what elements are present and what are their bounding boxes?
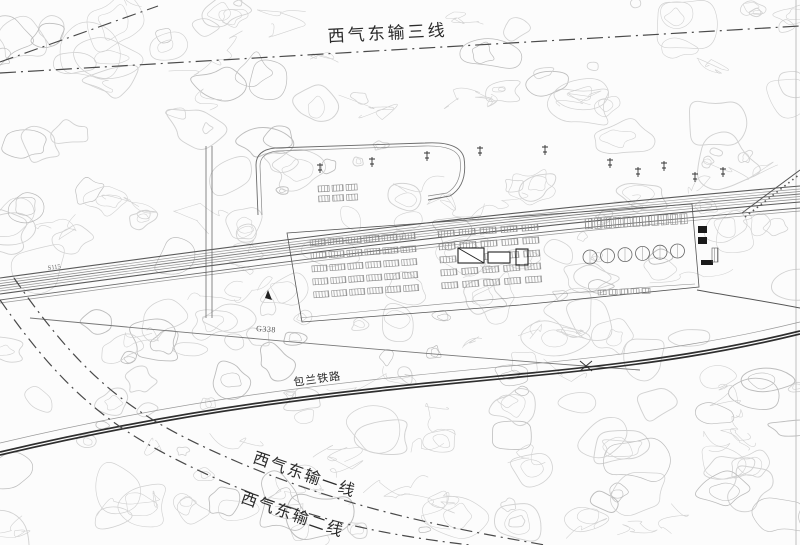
equipment-grid [585,214,687,229]
contour-line [498,395,518,408]
contour-line [118,484,166,527]
contour-line [380,349,394,365]
contour-line [0,345,14,356]
equipment-rect [383,247,398,254]
contour-line [544,239,573,264]
contour-line [352,318,369,331]
contour-line [509,516,525,527]
contour-line [595,119,655,154]
contour-line [203,304,257,332]
contour-line [308,96,324,118]
contour-line [587,62,598,70]
contour-line [574,265,619,289]
contour-line [444,88,496,109]
contour-line [286,392,293,395]
contour-line [501,395,525,418]
contour-line [356,159,361,164]
site-plan-drawing: 西气东输三线 [0,0,800,545]
contour-line [786,9,800,20]
contour-line [96,421,110,429]
equipment-rect [460,241,476,248]
equipment-rect [403,272,418,279]
contour-line [192,310,237,340]
contour-line [446,12,484,24]
contour-line [271,282,297,303]
contour-line [205,400,212,408]
equipment-rect [329,251,344,258]
equipment-rect [642,288,650,293]
contour-line [591,319,633,354]
contour-line [341,206,361,231]
equipment-rect [365,248,380,255]
contour-line [105,395,123,410]
contour-line [150,32,188,60]
contour-line [518,320,541,339]
contour-line [444,503,472,529]
contour-line [31,23,64,47]
equipment-rect [364,235,379,242]
contour-line [504,18,531,41]
contour-line [339,95,398,120]
contour-line [51,120,88,144]
equipment-rect [385,286,400,293]
pylon-icon [661,161,667,171]
equipment-rect [367,274,382,281]
loop-road [256,143,465,215]
contour-line [697,58,729,74]
equipment-rect [384,260,399,267]
contour-line [542,330,568,347]
contour-line [166,109,227,149]
contour-line [76,177,104,204]
contour-line [564,507,608,531]
contour-line [566,518,607,538]
contour-line [700,366,737,389]
contour-line [321,159,336,174]
contour-line [0,209,27,254]
contour-line [94,51,129,64]
pylon-layer [317,145,726,182]
equipment-rect [402,259,417,266]
equipment-rect [631,289,639,294]
contour-line [272,149,325,191]
contour-line [25,387,52,413]
pylon-icon [477,146,483,156]
contour-line [779,71,800,97]
equipment-rect [680,214,688,224]
contour-line [419,527,431,533]
contour-line [510,454,552,488]
contour-line [489,389,535,426]
equipment-rect [441,269,457,276]
contour-line [509,170,556,205]
equipment-rect [525,263,541,270]
equipment-rect [439,243,455,250]
contour-line [310,52,338,62]
contour-line [200,398,215,410]
contour-line [427,194,480,217]
equipment-rect [348,262,363,269]
contour-line [703,431,730,452]
contour-line [558,392,596,412]
contour-line [463,337,482,348]
equipment-rect [623,217,631,227]
equipment-rect [346,184,357,191]
contour-line [16,197,35,215]
facility-black-units [698,226,718,265]
contour-line [192,19,219,37]
equipment-grid [318,184,358,202]
contour-line [207,2,230,20]
contour-line [437,314,447,320]
contour-line [261,273,309,305]
contour-line [144,438,161,455]
contour-line [202,0,251,27]
contour-line [313,445,362,461]
contour-line [304,535,329,545]
contour-line [384,310,410,328]
contour-line [0,510,29,545]
contour-line [738,150,753,162]
equipment-rect [502,238,518,245]
contour-line [617,521,657,535]
equipment-rect [523,237,539,244]
pylon-icon [424,151,430,161]
contour-line [137,214,149,222]
contour-line [611,472,665,515]
contour-line [177,498,209,525]
contour-line [39,16,64,47]
equipment-rect [598,290,606,295]
pylon-icon [542,145,548,155]
contour-line [83,438,92,446]
contour-line [578,417,627,457]
equipment-rect [313,278,328,285]
equipment-rect [318,185,329,192]
contour-line [650,269,733,283]
equipment-rect [609,289,617,294]
contour-line [124,328,159,347]
contour-line [249,60,287,100]
contour-line [556,91,601,106]
contour-line [328,447,363,477]
contour-line [704,161,778,179]
equipment-rect [670,214,678,224]
contour-line [257,10,306,37]
contour-line [411,438,444,452]
contour-line [388,183,421,210]
equipment-rect [333,195,344,202]
contour-line [384,476,428,498]
contour-line [263,126,292,148]
contour-line [748,373,775,389]
equipment-rect [382,234,397,241]
pipeline-line1-label: 西气东输一线 [251,449,359,501]
equipment-rect [642,216,650,226]
equipment-rect [459,228,475,235]
equipment-rect [501,225,517,232]
contour-line [709,483,739,501]
contour-line [493,421,532,449]
contour-line [209,487,240,516]
pipeline-line3-label: 西气东输三线 [327,21,448,46]
contour-line [710,384,741,406]
contour-line [0,213,36,245]
contour-line [84,77,113,93]
equipment-rect [346,194,357,201]
contour-line [0,16,47,59]
contour-line [528,176,546,191]
contour-line [96,195,121,208]
contour-line [689,101,746,145]
equipment-rect [620,289,628,294]
contour-line [177,447,190,456]
equipment-rect [613,217,621,227]
contour-line [210,433,264,449]
equipment-grid [598,288,650,295]
contour-line [98,5,128,41]
contour-line [788,382,800,392]
equipment-rect [311,252,326,259]
equipment-rect [346,236,361,243]
contour-line [710,148,723,156]
equipment-rect [403,285,418,292]
contour-line [174,203,229,234]
contour-line [188,281,243,301]
equipment-rect [525,276,541,283]
equipment-rect [480,227,496,234]
equipment-rect [350,288,365,295]
equipment-rect [310,239,325,246]
contour-line [526,71,569,96]
contour-line [534,68,554,79]
contour-line [289,333,301,341]
equipment-rect [522,224,538,231]
contour-line [577,509,599,524]
contour-line [630,0,640,8]
contour-line [210,156,252,195]
equipment-rect [632,216,640,226]
contour-line [700,202,712,210]
contour-line [293,85,339,121]
equipment-rect [332,185,343,192]
contour-line [688,176,710,194]
contour-line [554,79,609,110]
pylon-icon [607,158,613,168]
equipment-rect [481,240,497,247]
contour-line [137,403,158,417]
contour-line [125,366,157,392]
contour-line [695,402,733,423]
contour-line [492,87,505,92]
contour-line [150,330,178,354]
equipment-rect [314,291,329,298]
contour-line [346,406,399,454]
equipment-rect [484,279,500,286]
equipment-rect [585,219,593,229]
contour-line [664,8,684,26]
contour-line [658,504,688,534]
contour-line [498,88,505,91]
equipment-rect [312,265,327,272]
contour-line [121,351,137,363]
contour-line [721,430,756,451]
contour-line [505,510,530,535]
equipment-rect [367,287,382,294]
equipment-rect [385,273,400,280]
contour-line [234,277,272,303]
equipment-rect [483,266,499,273]
equipment-rect [463,280,479,287]
contour-line [668,330,709,347]
contour-line [282,159,313,181]
equipment-rect [349,275,364,282]
contour-line [637,389,677,422]
contour-line [0,452,33,489]
equipment-rect [330,264,345,271]
equipment-rect [438,230,454,237]
road-left-label: S115 [47,263,61,272]
contour-line [260,342,295,381]
equipment-rect [651,215,659,225]
contour-line [577,232,587,242]
contour-line [363,480,455,513]
contour-line [603,438,670,481]
contour-line [567,299,612,341]
contour-line [557,327,585,338]
equipment-rect [604,218,612,228]
contour-line [354,321,365,328]
equipment-rect [401,246,416,253]
contour-line [156,29,172,43]
contour-line [763,218,788,235]
contour-line [221,373,241,387]
contour-line [433,434,450,447]
contour-line [702,446,746,479]
contour-line [423,429,455,452]
contour-line [260,297,275,316]
contour-line [494,504,541,542]
equipment-rect [524,250,540,257]
contour-line [732,450,770,478]
contour-line [704,210,747,242]
contour-line [195,89,222,110]
pylon-icon [635,167,641,177]
contour-line [172,343,207,356]
contour-line [767,79,800,118]
contour-line [768,420,800,436]
contour-line [237,217,254,233]
contour-line [515,386,528,395]
contour-line [353,157,363,166]
road-g338-label: G338 [256,324,276,334]
contour-line [74,38,143,79]
equipment-rect [319,195,330,202]
contour-line [422,496,488,538]
drawing-canvas: 西气东输三线 [0,0,800,545]
contour-line [661,2,693,29]
equipment-rect [400,233,415,240]
contour-line [202,316,223,332]
equipment-rect [661,215,669,225]
equipment-rect [332,290,347,297]
contour-line [213,361,251,399]
equipment-rect [328,238,343,245]
contour-line [203,123,213,134]
equipment-rect [462,267,478,274]
equipment-rect [331,277,346,284]
equipment-rect [440,256,456,263]
contour-line [80,310,111,335]
contour-line [193,468,214,481]
equipment-rect [366,261,381,268]
contour-line [752,498,800,532]
equipment-rect [442,282,458,289]
equipment-rect [594,218,602,228]
contour-line [294,409,313,423]
contour-line [567,87,591,101]
contour-line [600,130,636,148]
pylon-icon [369,157,375,167]
contour-line [649,249,673,264]
contour-line [395,193,417,207]
contour-line [519,174,556,202]
equipment-rect [504,277,520,284]
contour-line [728,378,779,409]
contour-line [35,214,76,239]
equipment-rect [347,249,362,256]
